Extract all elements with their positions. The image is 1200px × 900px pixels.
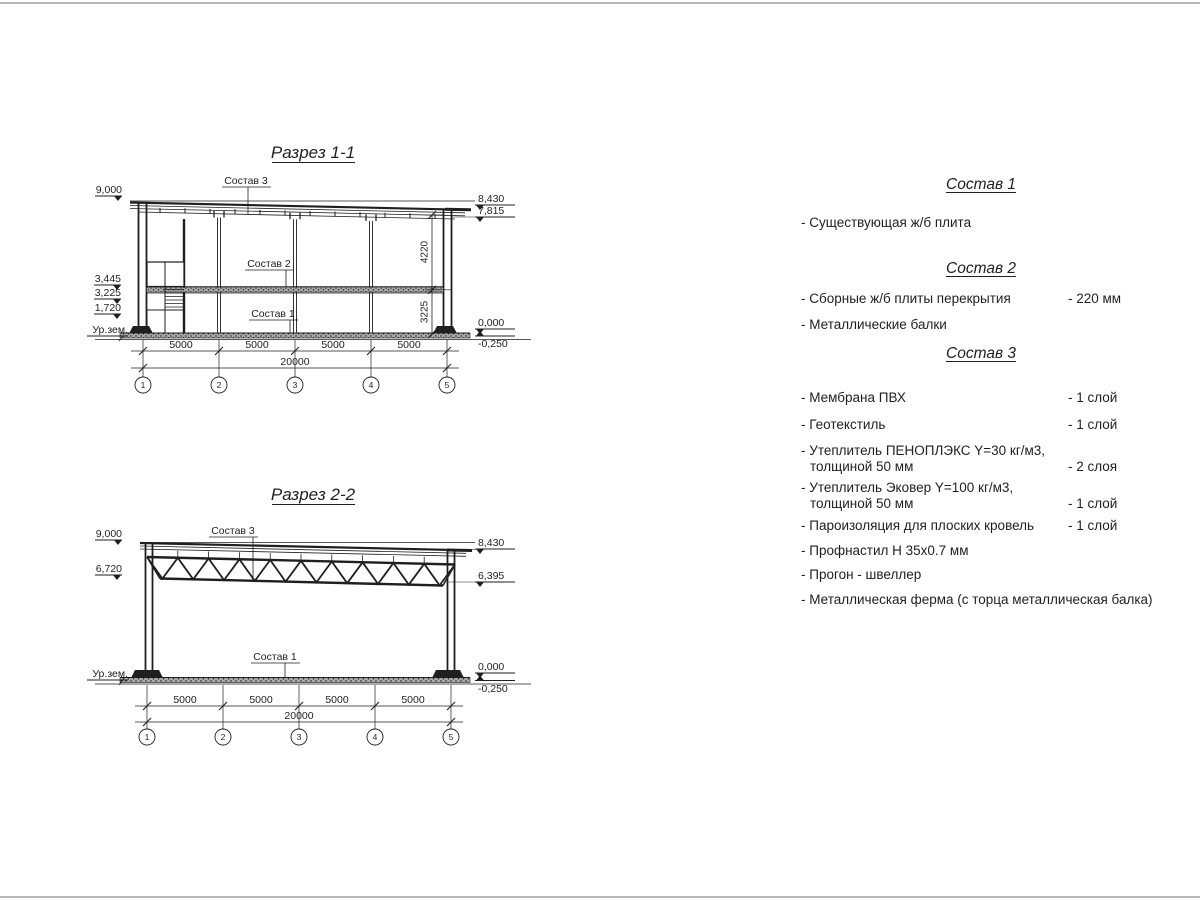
item-quantity: - 1 слой <box>1068 518 1117 534</box>
item-text: - Прогон - швеллер <box>801 567 921 582</box>
vertical-dimension: 4220 3225 <box>420 211 453 338</box>
elevation-mark: -0,250 <box>478 338 508 350</box>
item-quantity: - 1 слой <box>1068 417 1117 433</box>
ground-level-label: Ур.зем. <box>92 324 128 336</box>
composition-item: - Прогон - швеллер <box>801 567 921 583</box>
extension-lines <box>147 685 451 729</box>
ground-slab <box>95 670 531 684</box>
composition-1-header: Состав 1 <box>801 176 1161 194</box>
composition-item: - Пароизоляция для плоских кровель <box>801 518 1034 534</box>
floor-slab <box>147 287 444 294</box>
elevation-marks-right: 8,430 7,815 0,000 -0,250 <box>452 193 515 350</box>
item-quantity: - 2 слоя <box>1068 459 1117 475</box>
elevation-mark: 3,225 <box>95 287 121 299</box>
item-quantity: - 1 слой <box>1068 496 1117 512</box>
dim-label: 5000 <box>397 339 421 351</box>
roof-structure <box>140 543 475 557</box>
item-text: - Пароизоляция для плоских кровель <box>801 518 1034 533</box>
elevation-mark: 7,815 <box>478 205 504 217</box>
dim-label: 5000 <box>173 694 197 706</box>
callout-label: Состав 3 <box>224 175 268 187</box>
dim-label: 5000 <box>325 694 349 706</box>
item-text: - Металлические балки <box>801 317 947 332</box>
elevation-mark: 8,430 <box>478 193 504 205</box>
item-text: - Утеплитель ПЕНОПЛЭКС Y=30 кг/м3, <box>801 443 1045 458</box>
elevation-mark: 0,000 <box>478 317 504 329</box>
item-text: - Утеплитель Эковер Y=100 кг/м3, <box>801 480 1013 495</box>
elevation-mark: 9,000 <box>96 184 122 196</box>
elevation-mark: 8,430 <box>478 537 504 549</box>
elevation-mark: 6,720 <box>96 563 122 575</box>
composition-item: - Сборные ж/б плиты перекрытия <box>801 291 1011 307</box>
dim-label: 5000 <box>401 694 425 706</box>
elevation-mark: 9,000 <box>96 528 122 540</box>
composition-2-header: Состав 2 <box>801 260 1161 278</box>
callout-label: Состав 1 <box>253 651 297 663</box>
drawing-sheet: Разрез 1-1 <box>0 0 1200 900</box>
staircase <box>147 262 184 334</box>
item-text-line2: толщиной 50 мм <box>801 496 1013 512</box>
section-title: Разрез 1-1 <box>271 143 355 162</box>
footing-right <box>432 670 464 678</box>
footing-left <box>131 670 163 678</box>
callout-label: Состав 3 <box>211 525 255 537</box>
horizontal-dimensions: 5000 5000 5000 5000 20000 <box>131 339 459 377</box>
callout-sostav-1: Состав 1 <box>251 651 300 677</box>
axis-number: 2 <box>217 380 222 390</box>
axis-number: 3 <box>297 732 302 742</box>
axis-bubbles: 1 2 3 4 5 <box>135 377 455 393</box>
axis-number: 1 <box>145 732 150 742</box>
callout-label: Состав 1 <box>251 308 295 320</box>
item-text: - Существующая ж/б плита <box>801 215 971 230</box>
composition-item: - Мембрана ПВХ <box>801 390 906 406</box>
dim-total-label: 20000 <box>284 710 313 722</box>
axis-number: 5 <box>445 380 450 390</box>
ground-level-label: Ур.зем. <box>92 668 128 680</box>
composition-item: - Геотекстиль <box>801 417 885 433</box>
elevation-marks-left: 9,000 6,720 Ур.зем. <box>87 528 128 685</box>
axis-number: 4 <box>369 380 374 390</box>
elevation-mark: 3,445 <box>95 273 121 285</box>
composition-item: - Утеплитель ПЕНОПЛЭКС Y=30 кг/м3, толщи… <box>801 443 1045 475</box>
section-2-2-title: Разрез 2-2 <box>271 485 356 505</box>
composition-item: - Металлические балки <box>801 317 947 333</box>
composition-item: - Металлическая ферма (с торца металличе… <box>801 592 1153 608</box>
section-1-1-title: Разрез 1-1 <box>271 143 355 163</box>
item-text: - Сборные ж/б плиты перекрытия <box>801 291 1011 306</box>
section-1-1-drawing: Разрез 1-1 <box>75 135 545 405</box>
elevation-mark: 0,000 <box>478 661 504 673</box>
item-text: - Геотекстиль <box>801 417 885 432</box>
callout-label: Состав 2 <box>247 258 291 270</box>
roof-truss <box>147 551 455 586</box>
dim-label: 5000 <box>245 339 269 351</box>
dim-label: 4220 <box>420 240 431 263</box>
elevation-mark: 6,395 <box>478 570 504 582</box>
elevation-mark: 1,720 <box>95 302 121 314</box>
dim-label: 5000 <box>321 339 345 351</box>
axis-number: 3 <box>293 380 298 390</box>
composition-item: - Существующая ж/б плита <box>801 215 971 231</box>
composition-panel: Состав 1 - Существующая ж/б плита Состав… <box>801 0 1171 900</box>
axis-number: 2 <box>221 732 226 742</box>
walls-and-columns <box>139 203 452 335</box>
dim-total-label: 20000 <box>280 356 309 368</box>
axis-bubbles: 1 2 3 4 5 <box>139 729 459 745</box>
section-2-2-drawing: Разрез 2-2 <box>75 480 545 765</box>
roof-structure <box>130 201 475 221</box>
elevation-marks-left: 9,000 3,445 3,225 1,720 Ур.зем. <box>87 184 128 341</box>
dim-label: 5000 <box>169 339 193 351</box>
elevation-mark: -0,250 <box>478 683 508 695</box>
callout-sostav-3: Состав 3 <box>209 525 258 582</box>
composition-item: - Профнастил Н 35х0.7 мм <box>801 543 968 559</box>
dim-label: 5000 <box>249 694 273 706</box>
footing-left <box>129 326 153 334</box>
callout-sostav-2: Состав 2 <box>245 258 294 287</box>
axis-number: 5 <box>449 732 454 742</box>
item-quantity: - 220 мм <box>1068 291 1121 307</box>
item-quantity: - 1 слой <box>1068 390 1117 406</box>
footing-right <box>433 326 457 334</box>
horizontal-dimensions: 5000 5000 5000 5000 20000 <box>135 685 463 729</box>
callout-sostav-1: Состав 1 <box>249 308 298 333</box>
interior-columns <box>218 218 373 335</box>
item-text: - Мембрана ПВХ <box>801 390 906 405</box>
axis-number: 1 <box>141 380 146 390</box>
item-text: - Профнастил Н 35х0.7 мм <box>801 543 968 558</box>
dim-label: 3225 <box>420 300 431 323</box>
item-text: - Металлическая ферма (с торца металличе… <box>801 592 1153 607</box>
item-text-line2: толщиной 50 мм <box>801 459 1045 475</box>
section-title: Разрез 2-2 <box>271 485 356 504</box>
axis-number: 4 <box>373 732 378 742</box>
composition-item: - Утеплитель Эковер Y=100 кг/м3, толщино… <box>801 480 1013 512</box>
composition-3-header: Состав 3 <box>801 345 1161 363</box>
